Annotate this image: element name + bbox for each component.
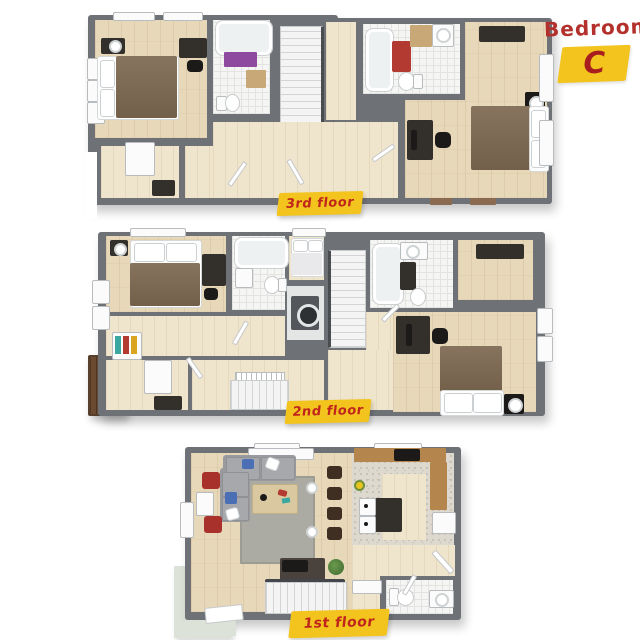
- bar-stool: [327, 527, 342, 540]
- desk-monitor: [406, 324, 412, 346]
- bathtub: [216, 21, 272, 55]
- plan-title-letter-badge: C: [557, 45, 630, 83]
- entry-step: [204, 604, 243, 624]
- stove: [394, 449, 420, 461]
- toilet-tank: [278, 278, 287, 292]
- entry-desk-top: [282, 560, 308, 572]
- bar-stool: [327, 487, 342, 500]
- door-mat: [470, 198, 496, 205]
- pillow: [308, 240, 323, 252]
- stair-landing: [326, 22, 356, 120]
- books: [123, 336, 129, 354]
- office-chair: [432, 328, 448, 344]
- closet: [125, 142, 155, 176]
- oven-knob: [364, 522, 368, 526]
- desk: [396, 316, 430, 354]
- pillow: [166, 243, 197, 262]
- window: [537, 308, 553, 334]
- kitchen-island: [375, 498, 402, 532]
- floor-3: 3rd floor: [85, 12, 555, 218]
- window: [130, 228, 186, 237]
- toilet: [410, 288, 426, 306]
- bathtub: [373, 244, 403, 304]
- armchair: [202, 472, 220, 489]
- pillow: [473, 393, 502, 413]
- closet: [144, 360, 172, 394]
- bed-duvet: [440, 346, 502, 392]
- shower-curtain: [224, 52, 257, 67]
- stairs: [328, 250, 366, 348]
- window: [180, 502, 194, 538]
- toilet: [225, 94, 240, 112]
- window: [539, 120, 554, 166]
- dresser: [152, 180, 175, 196]
- sink-basin: [436, 28, 451, 43]
- wardrobe: [92, 280, 110, 304]
- washer-door: [297, 304, 320, 327]
- toilet-tank: [413, 74, 423, 89]
- bed-duvet: [130, 263, 200, 306]
- console-table: [196, 492, 214, 516]
- flower-decor: [354, 480, 365, 491]
- books: [131, 336, 137, 354]
- pillow: [293, 240, 308, 252]
- bed-duvet: [471, 106, 531, 170]
- plant: [328, 559, 344, 575]
- floor-lamp: [306, 526, 318, 538]
- fridge: [432, 512, 456, 534]
- pillow: [100, 89, 115, 117]
- floor-2-label: 2nd floor: [285, 399, 372, 424]
- hall-counter: [352, 580, 382, 594]
- window: [163, 12, 203, 21]
- vanity: [246, 70, 266, 88]
- vanity: [400, 262, 416, 290]
- stairs-down: [230, 380, 289, 410]
- pillow: [444, 393, 473, 413]
- floor-2: 2nd floor: [88, 228, 558, 430]
- door-mat: [430, 198, 452, 205]
- dresser: [154, 396, 182, 410]
- bathtub: [235, 238, 288, 268]
- floor-1-label: 1st floor: [288, 609, 389, 639]
- bar-stool: [327, 466, 342, 479]
- lamp: [114, 243, 127, 256]
- armchair: [204, 516, 222, 533]
- bar-stool: [327, 507, 342, 520]
- desk-monitor: [411, 130, 417, 150]
- bed-duvet: [116, 56, 177, 118]
- office-chair: [187, 60, 203, 72]
- floor-plan-canvas: 3rd floor: [0, 0, 640, 640]
- stairs: [280, 26, 324, 124]
- window: [292, 228, 326, 237]
- table-decor: [260, 494, 267, 501]
- window: [113, 12, 155, 21]
- floor-lamp: [306, 482, 318, 494]
- throw-pillow: [225, 492, 237, 504]
- bath-mat: [392, 41, 411, 72]
- dresser: [479, 26, 525, 42]
- pillow: [100, 60, 115, 88]
- plan-title: Bedroom: [544, 14, 640, 41]
- bathtub: [366, 29, 393, 91]
- pillow: [134, 243, 165, 262]
- wall-notch: [85, 152, 97, 218]
- throw-pillow: [242, 459, 254, 469]
- floor-3-label: 3rd floor: [277, 191, 364, 216]
- office-chair: [435, 132, 451, 148]
- window: [537, 336, 553, 362]
- vanity: [410, 25, 432, 47]
- speaker-cone: [508, 398, 523, 413]
- coffee-table: [252, 484, 298, 514]
- sink-basin: [435, 593, 449, 607]
- office-chair: [204, 288, 218, 300]
- floor-1: 1st floor: [178, 440, 468, 640]
- lamp: [109, 40, 122, 53]
- hallway: [213, 122, 398, 198]
- oven-knob: [364, 504, 368, 508]
- daybed-blanket: [291, 253, 322, 275]
- sink-basin: [406, 245, 420, 259]
- kitchen-counter: [430, 462, 447, 510]
- books: [115, 336, 121, 354]
- desk: [179, 38, 207, 58]
- vanity: [235, 268, 253, 288]
- wardrobe: [92, 306, 110, 330]
- window: [539, 54, 554, 102]
- dresser: [476, 244, 524, 259]
- desk: [202, 254, 226, 286]
- hallway: [185, 146, 213, 198]
